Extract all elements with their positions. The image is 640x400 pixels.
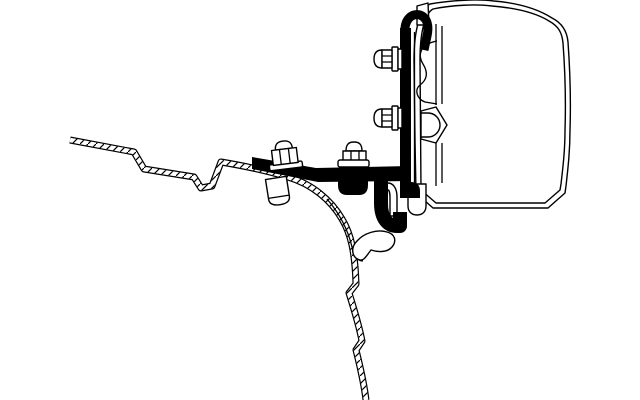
awning-case bbox=[408, 0, 570, 215]
bar-nut-dome bbox=[346, 142, 362, 151]
plate-bolt-upper-flange bbox=[392, 47, 398, 71]
illustration-canvas bbox=[0, 0, 640, 400]
roof-bolt-spacer-group bbox=[265, 176, 290, 206]
plate-bolt-lower-flange bbox=[392, 106, 398, 130]
roof-gutter-lip bbox=[353, 231, 395, 260]
plate-bolt-lower bbox=[374, 106, 402, 130]
plate-bolt-upper-washer bbox=[398, 49, 402, 69]
plate-bolt-lower-washer bbox=[398, 108, 402, 128]
bar-washer-boss bbox=[338, 179, 368, 195]
plate-bolt-upper-hex bbox=[382, 50, 392, 68]
awning-adapter-illustration bbox=[0, 0, 640, 400]
spacer-cylinder bbox=[265, 176, 290, 206]
roof-bolt-hex bbox=[272, 148, 299, 166]
case-rail-arrow-dome bbox=[421, 113, 440, 137]
plate-bolt-lower-dome bbox=[374, 109, 382, 127]
plate-bolt-upper bbox=[374, 47, 402, 71]
bar-nut-flange bbox=[338, 160, 369, 167]
mounting-plate-foot bbox=[400, 182, 420, 198]
roof-bolt-head-group bbox=[267, 139, 303, 171]
plate-bolt-lower-hex bbox=[382, 109, 392, 127]
plate-bolt-upper-dome bbox=[374, 50, 382, 68]
bar-flange-nut bbox=[338, 142, 369, 167]
